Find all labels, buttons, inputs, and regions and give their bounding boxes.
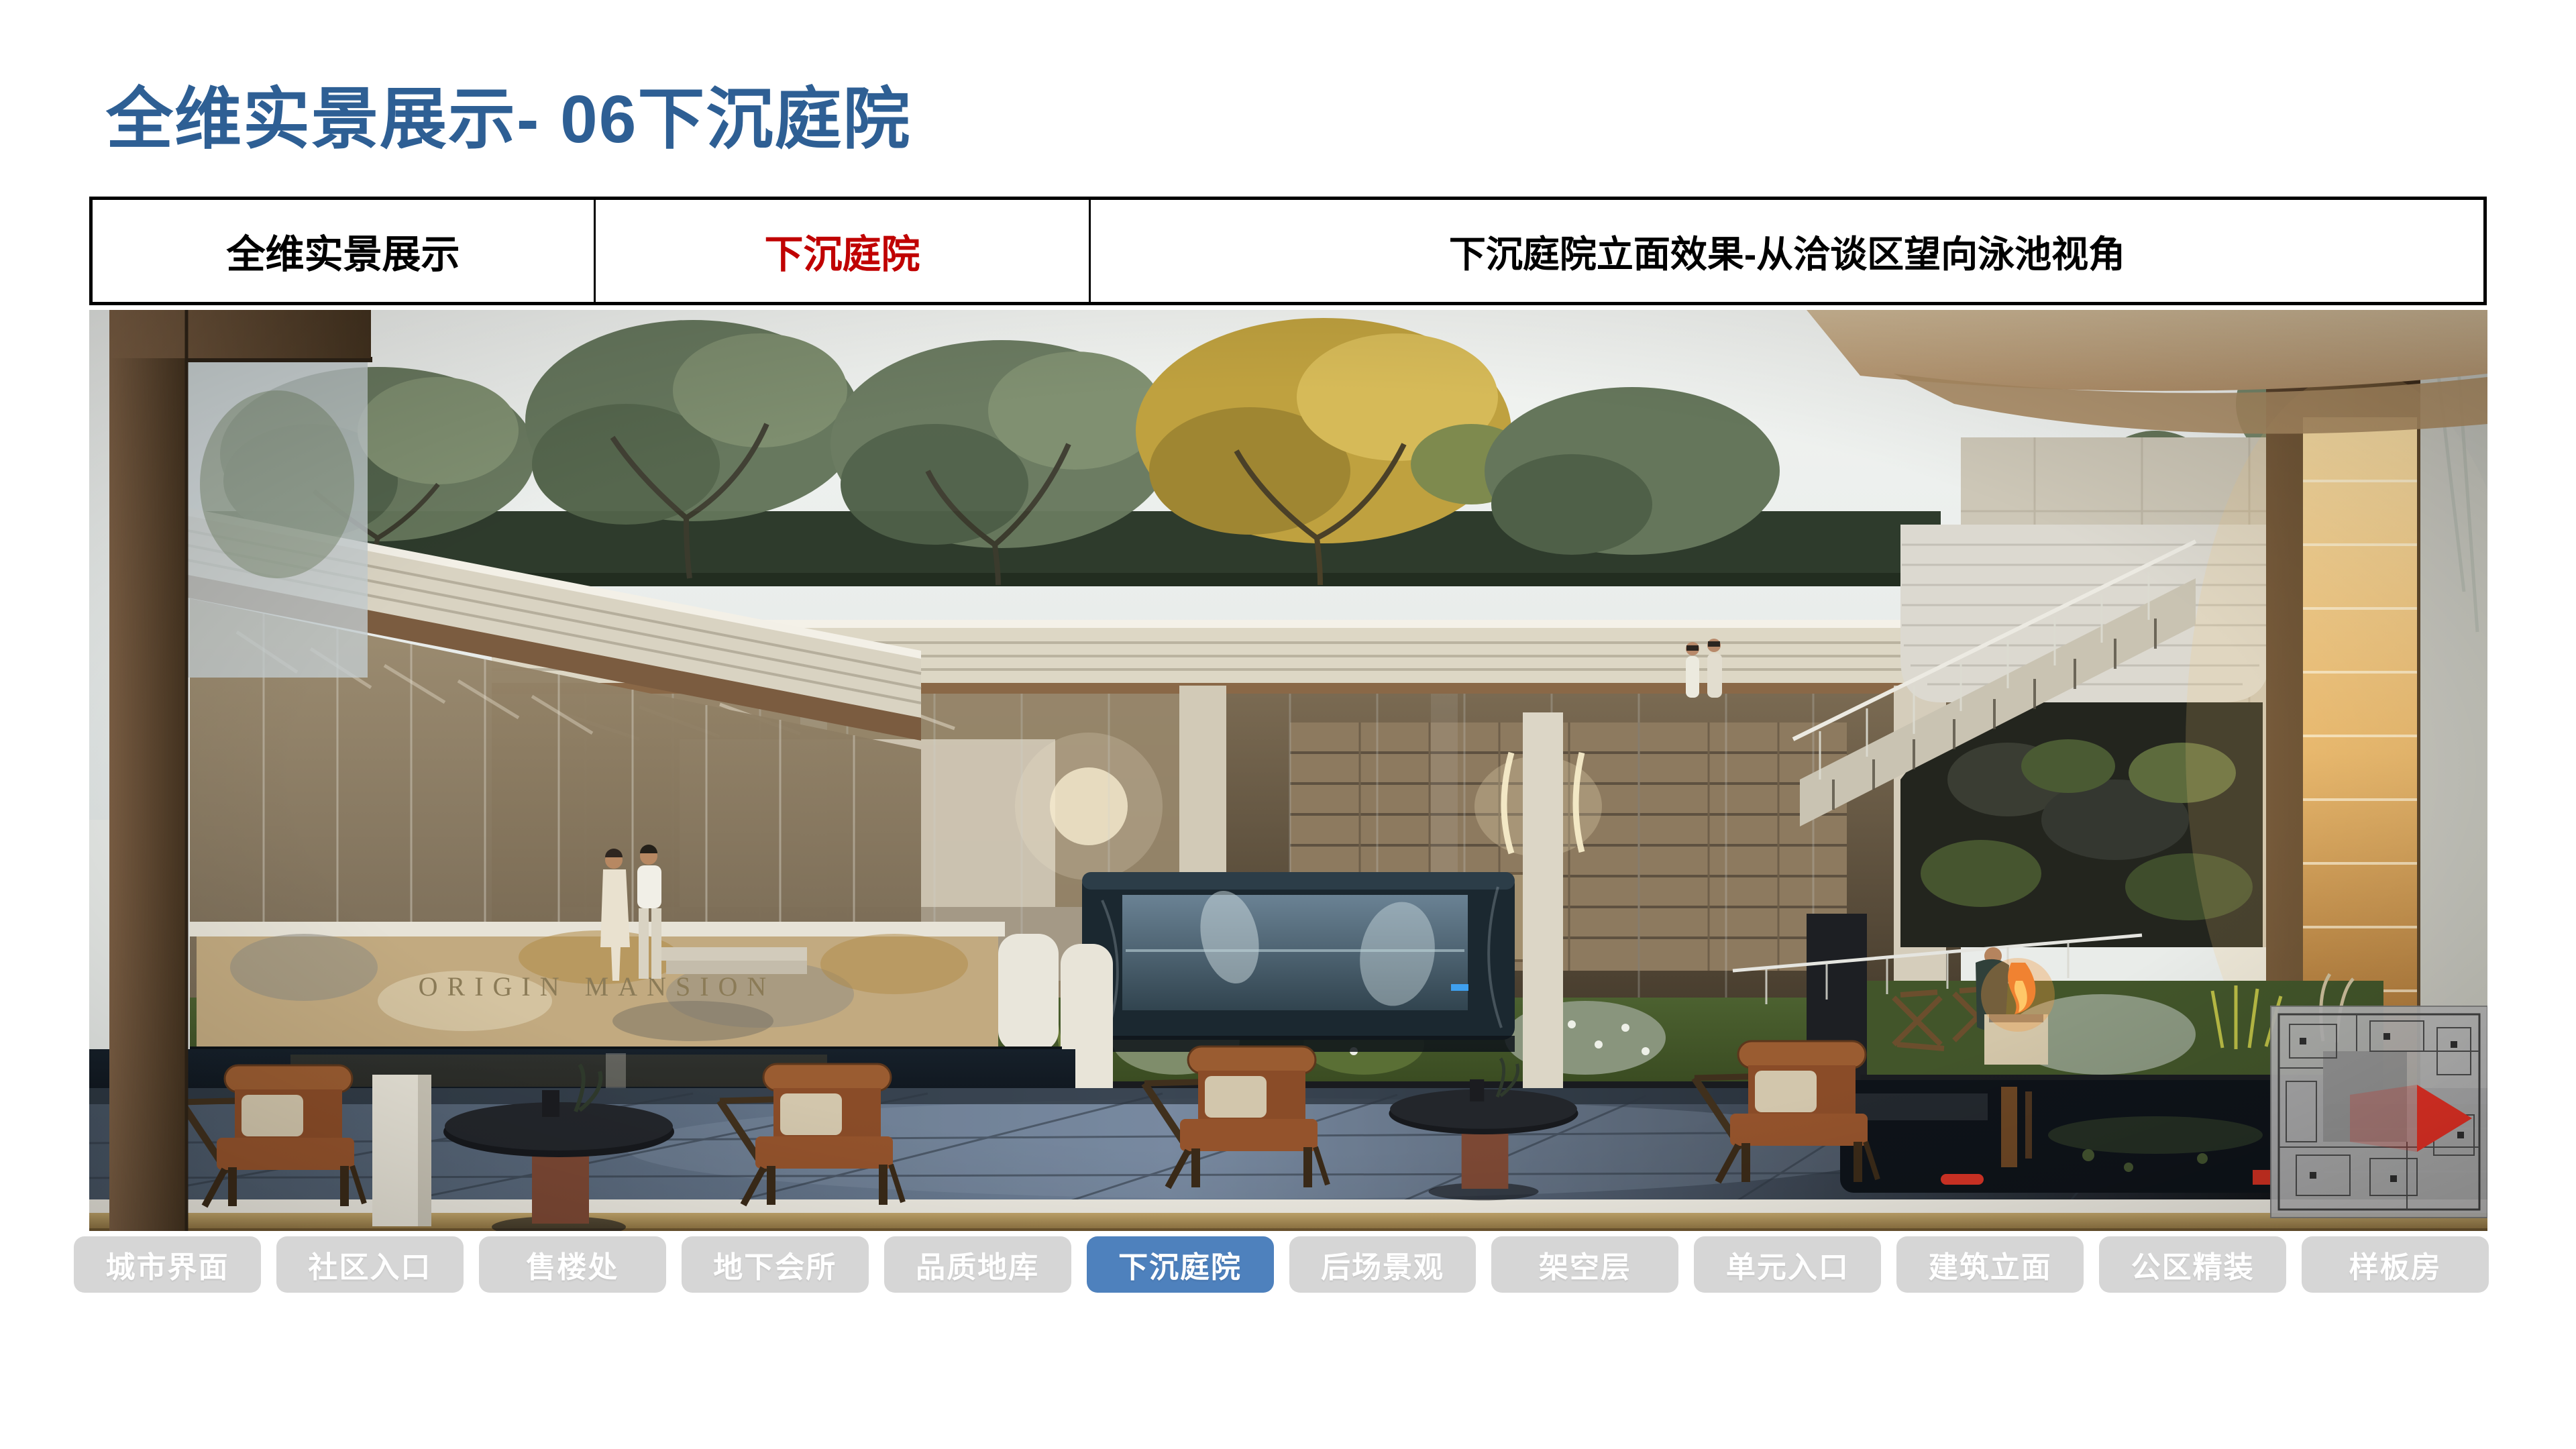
page-title: 全维实景展示- 06下沉庭院 (106, 64, 1850, 162)
tab-stilt-floor[interactable]: 架空层 (1491, 1236, 1678, 1293)
courtyard-rendering: ORIGIN MANSION OR (89, 310, 2487, 1231)
header-cell-overview: 全维实景展示 (93, 200, 596, 302)
tab-backyard-landscape[interactable]: 后场景观 (1289, 1236, 1477, 1293)
section-tabbar: 城市界面社区入口售楼处地下会所品质地库下沉庭院后场景观架空层单元入口建筑立面公区… (74, 1236, 2489, 1293)
header-table: 全维实景展示 下沉庭院 下沉庭院立面效果-从洽谈区望向泳池视角 (89, 197, 2487, 305)
tab-sunken-courtyard[interactable]: 下沉庭院 (1087, 1236, 1274, 1293)
tab-quality-garage[interactable]: 品质地库 (884, 1236, 1071, 1293)
tab-unit-entrance[interactable]: 单元入口 (1694, 1236, 1881, 1293)
tab-city-interface[interactable]: 城市界面 (74, 1236, 261, 1293)
tab-public-area-decoration[interactable]: 公区精装 (2099, 1236, 2286, 1293)
header-cell-caption: 下沉庭院立面效果-从洽谈区望向泳池视角 (1091, 200, 2483, 302)
header-cell-section: 下沉庭院 (596, 200, 1091, 302)
tab-community-entrance[interactable]: 社区入口 (276, 1236, 464, 1293)
tab-building-facade[interactable]: 建筑立面 (1896, 1236, 2084, 1293)
tab-show-flat[interactable]: 样板房 (2302, 1236, 2489, 1293)
tab-underground-club[interactable]: 地下会所 (682, 1236, 869, 1293)
tab-sales-office[interactable]: 售楼处 (479, 1236, 666, 1293)
vignette (89, 310, 2487, 1231)
